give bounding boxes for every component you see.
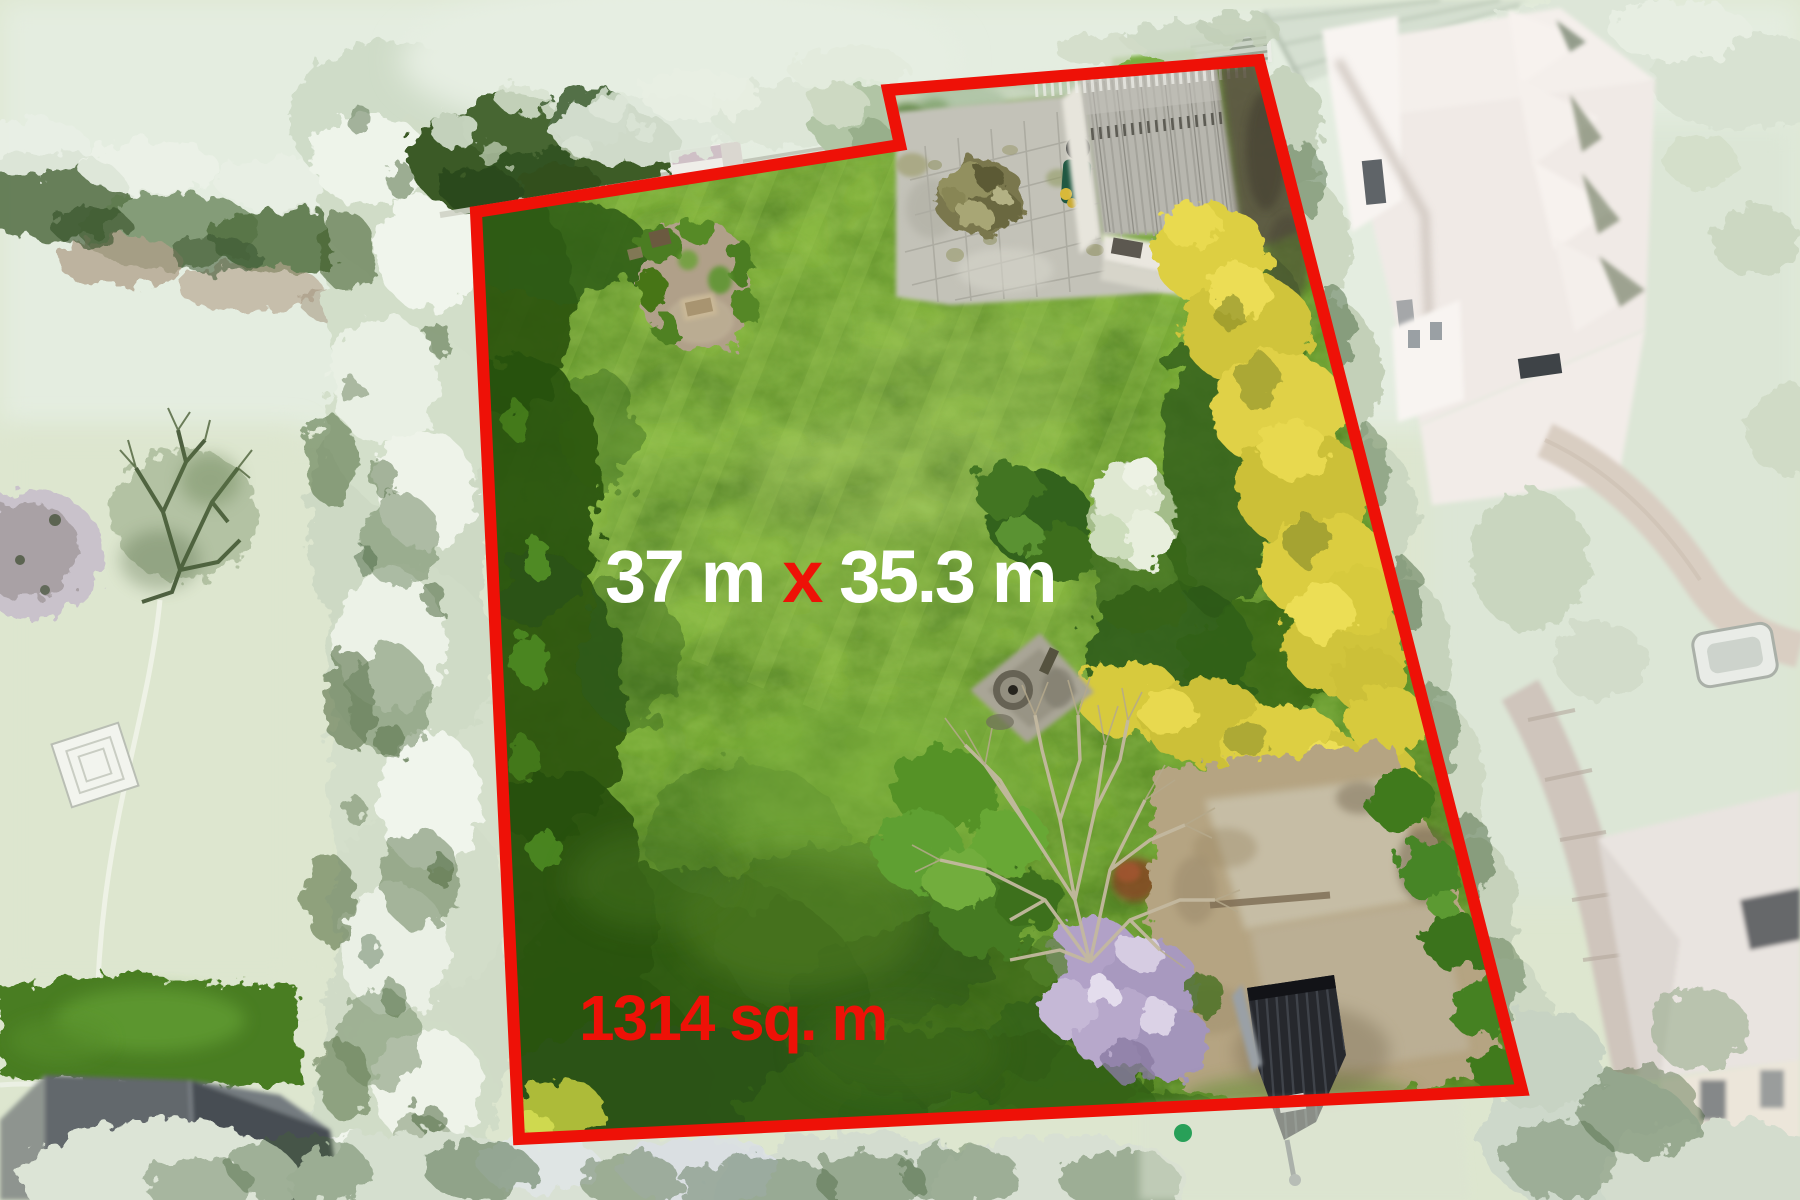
- svg-text:1314 sq. m: 1314 sq. m: [579, 982, 886, 1054]
- svg-text:37 m x 35.3 m: 37 m x 35.3 m: [605, 535, 1055, 618]
